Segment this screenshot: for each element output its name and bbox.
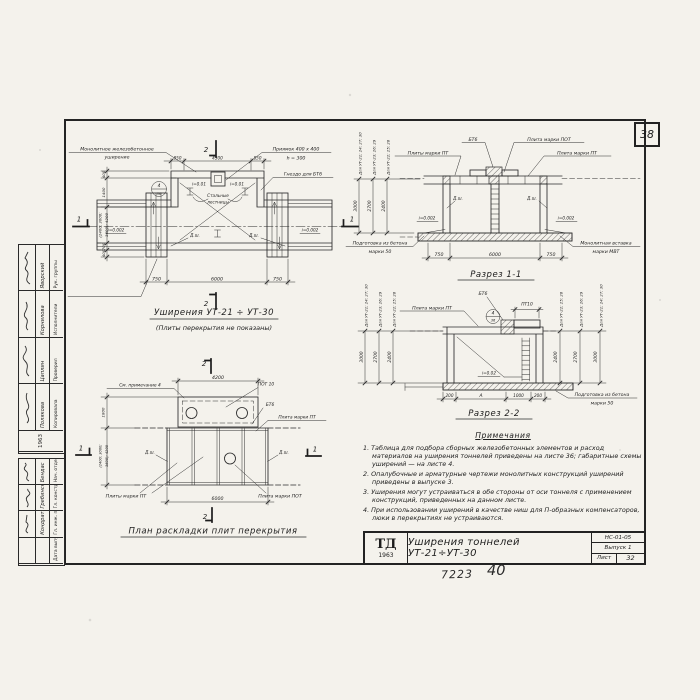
s2-label-pt10: ПТ10 (521, 302, 533, 308)
plan-slope-top-left: i=0.01 (192, 182, 206, 187)
p2-label-note: См. примечание 4 (119, 383, 161, 389)
plan-dim-top-left: 850 (174, 156, 182, 161)
s1-joint-left: Д.ш. (452, 196, 463, 201)
stamp-name: Яворский (36, 245, 50, 291)
plan-dim-v4: 700 (101, 242, 106, 250)
stamp-row-checker: Цаплин Проверил (19, 338, 63, 385)
s2-detail-num: 4 (492, 311, 495, 317)
plan-dim-v3b: 3600); 4200 (104, 213, 109, 237)
s2-hr-label-1: Для УТ-23; 26; 29 (579, 291, 584, 328)
approval-stamp-upper: Яворский Рук. группы Корнилова Исполните… (18, 244, 65, 454)
s1-joint-right: Д.ш. (526, 196, 537, 201)
org-logo-text: ТД (375, 538, 396, 551)
stamp-role: Гл. инж. пр. (50, 512, 63, 537)
stamp-role: Нач. отдела (50, 459, 63, 484)
signature-empty (19, 538, 36, 563)
s1-slope-left: i=0.002 (419, 216, 436, 221)
signature-stroke (25, 252, 30, 284)
s2-hl-label-2: Для УТ-22; 25; 28 (392, 291, 397, 328)
note-item-1: 1. Таблица для подбора сборных железобет… (363, 444, 643, 469)
s2-title: Разрез 2-2 (468, 409, 520, 419)
p2-joint-right: Д.ш. (278, 450, 289, 455)
stamp-role: Проверил (50, 338, 63, 384)
note-item-2: 2. Опалубочные и арматурные чертежи моно… (363, 470, 643, 487)
signature (19, 338, 36, 384)
signature (19, 385, 36, 431)
s1-insert-2: марки МВТ (593, 249, 621, 255)
s1-dim-center: 6000 (489, 252, 501, 258)
signature (19, 512, 36, 537)
s2-hl-value-1: 2700 (373, 351, 379, 362)
s2-hl-label-0: Для УТ-21; 24; 27; 30 (364, 284, 369, 328)
p2-dim-bottom: 6000 (212, 496, 224, 502)
s1-title: Разрез 1-1 (470, 270, 522, 280)
s1-height-label-0: Для УТ-21; 24; 27; 30 (358, 132, 363, 176)
p2-joint-left: Д.ш. (144, 450, 155, 455)
plan-subtitle: (Плиты перекрытия не показаны) (156, 324, 272, 332)
stamp-name: Полякова (36, 385, 50, 431)
p2-dim-left-lower-a: (2400; 3000; (99, 444, 103, 467)
corner-sheet-number: 38 (634, 122, 660, 147)
s2-label-bt6: БТ6 (478, 291, 487, 297)
stamp-name: Гребинский (36, 485, 50, 510)
s1-dim-right: 750 (547, 252, 556, 258)
s1-label-pt-left: Плиты марки ПТ (408, 151, 450, 157)
plan-slope-top-right: i=0.01 (230, 182, 244, 187)
org-logo-year: 1963 (378, 552, 393, 559)
plan-label-widening-2: уширение (104, 156, 130, 161)
s1-height-value-2: 2400 (381, 200, 387, 211)
signature (19, 245, 36, 291)
s1-slope-right: i=0.002 (558, 216, 575, 221)
plan-label-ladders-1: Стальные (207, 193, 229, 198)
plan-dim-top-center: 4300 (212, 156, 223, 161)
note-item-3: 3. Уширения могут устраиваться в обе сто… (363, 488, 643, 505)
stamp-row-chief-designer: Гребинский Гл. конструктор (19, 485, 63, 511)
signature (19, 459, 36, 484)
s2-hr-value-1: 2700 (573, 351, 579, 362)
p2-mark-1-right: 1 (313, 446, 317, 454)
stamp-role: Исполнители (50, 292, 63, 338)
plan-label-socket: Гнездо для БТ6 (284, 172, 322, 178)
signature-stroke (24, 463, 29, 481)
stamp-role: Дата выпуска (50, 538, 63, 563)
p2-label-pt: Плита марки ПТ (278, 415, 316, 421)
drawing-title: Уширения тоннелей УТ-21÷УТ-30 (408, 533, 591, 563)
plan-mark-2-top: 2 (204, 146, 209, 154)
stamp-row-lead: Яворский Рук. группы (19, 245, 63, 292)
s1-height-label-2: Для УТ-22; 25; 28 (386, 139, 391, 176)
p2-mark-2-top: 2 (202, 360, 207, 368)
plan-detail-sheet: 36 (157, 191, 162, 196)
signature-stroke (26, 515, 28, 533)
plan-dim-top-right: 850 (254, 156, 262, 161)
p2-dim-top: 4200 (212, 375, 224, 381)
plan-dim-v5: 400 (101, 249, 106, 257)
sheet-number-row: Лист 32 (592, 554, 644, 563)
title-block-codes: НС-01-05 Выпуск 1 Лист 32 (591, 533, 644, 563)
s1-dim-left: 750 (435, 252, 444, 258)
stamp-year: 1963 (19, 431, 63, 452)
note-item-4: 4. При использовании уширений в качестве… (363, 506, 643, 523)
s1-prep-2: марки 50 (369, 249, 392, 255)
plan-dim-bottom-center: 6000 (211, 277, 223, 283)
s1-prep-1: Подготовка из бетона (353, 241, 408, 247)
stamp-name: Цаплин (36, 338, 50, 384)
s2-hr-value-0: 2400 (553, 351, 559, 362)
plan-slope-right: i=0.002 (302, 228, 319, 233)
s2-dim-2: 1000 (513, 393, 524, 398)
slab-layout-plan: См. примечание 4 ПОТ 10 БТ6 Плита марки … (76, 359, 326, 537)
plan-dim-v3a: (2400; 3000; (98, 212, 103, 238)
stamp-row-executor: Корнилова Исполнители (19, 292, 63, 339)
p2-title: План раскладки плит перекрытия (129, 527, 298, 537)
approval-stamp-lower-rotated: Бендас Нач. отдела Гребинский Гл. констр… (19, 459, 63, 564)
s1-height-value-1: 2700 (367, 200, 373, 211)
plan-label-ladders-2: лестницы (206, 200, 229, 205)
p2-label-pot: Плита марки ПОТ (258, 494, 303, 500)
s2-hr-label-0: Для УТ-22; 25; 28 (559, 291, 564, 328)
signature-stroke (26, 393, 29, 423)
org-logo: ТД 1963 (365, 533, 408, 563)
s2-hr-label-2: Для УТ-21; 24; 27; 30 (599, 284, 604, 328)
stamp-name: Кондратьев (36, 512, 50, 537)
s1-label-pt-right: Плита марки ПТ (557, 151, 598, 157)
footer-code: 7223 (441, 567, 473, 581)
p2-mark-1-left: 1 (79, 445, 83, 453)
plan-view: Монолитное железобетонное уширение Приям… (68, 141, 358, 332)
plan-dim-bottom-left: 750 (152, 277, 161, 283)
plan-label-widening-1: Монолитное железобетонное (80, 147, 154, 153)
signature-stroke (26, 489, 30, 507)
stamp-name (36, 538, 50, 563)
plan-label-pit-1: Приямок 400 х 400 (273, 147, 320, 153)
s2-hl-value-0: 3000 (359, 351, 365, 362)
plan-title: Уширения УТ-21 ÷ УТ-30 (154, 308, 274, 318)
stamp-row-dept-head: Бендас Нач. отдела (19, 459, 63, 485)
section-1-1: Плиты марки ПТ БТ6 Плита марки ПОТ Плита… (346, 132, 640, 280)
approval-stamp-lower: Бендас Нач. отдела Гребинский Гл. констр… (18, 458, 65, 566)
stamp-row-copyist: Полякова Копировала (19, 385, 63, 432)
plan-detail-num: 4 (158, 183, 161, 189)
doc-code: НС-01-05 (592, 533, 644, 543)
p2-dim-left-upper: 1800 (101, 407, 106, 417)
p2-label-pt-plural: Плиты марки ПТ (106, 494, 148, 500)
signature-stroke (24, 302, 28, 330)
plan-mark-1-right: 1 (350, 216, 354, 224)
s2-hl-label-1: Для УТ-23; 26; 29 (378, 291, 383, 328)
notes-section: Примечания 1. Таблица для подбора сборны… (363, 431, 643, 524)
s2-label-pt: Плита марки ПТ (412, 306, 453, 312)
s1-height-value-0: 3000 (353, 200, 359, 211)
plan-label-pit-2: h = 300 (287, 156, 306, 162)
stamp-name: Бендас (36, 459, 50, 484)
s2-prep-2: марки 50 (591, 401, 614, 407)
s1-height-label-1: Для УТ-23; 26; 29 (372, 139, 377, 176)
s2-dim-3: 200 (534, 393, 542, 398)
s2-dim-0: 200 (446, 393, 454, 398)
s2-prep-1: Подготовка из бетона (575, 392, 630, 398)
approval-stamp-upper-rotated: Яворский Рук. группы Корнилова Исполните… (19, 245, 63, 452)
plan-slope-left: i=0.002 (108, 228, 125, 233)
signature (19, 485, 36, 510)
sheet-number: 32 (617, 554, 644, 563)
section-2-2: Плита марки ПТ БТ6 ПТ10 4 36 i=0.02 Подг… (358, 284, 637, 419)
signature-stroke (23, 346, 29, 376)
signature (19, 292, 36, 338)
s2-hr-value-2: 3000 (593, 351, 599, 362)
stamp-name: Корнилова (36, 292, 50, 338)
plan-dim-v2: 1400 (101, 187, 106, 197)
plan-mark-2-bottom: 2 (204, 300, 209, 308)
p2-label-pot10: ПОТ 10 (258, 382, 275, 388)
plan-mark-1-left: 1 (77, 216, 81, 224)
s1-insert-1: Монолитная вставка (580, 241, 631, 247)
s2-hl-value-2: 2400 (387, 351, 393, 362)
p2-label-bt6: БТ6 (266, 402, 275, 408)
plan-dim-v1: 400 (101, 170, 106, 178)
s2-slope: i=0.02 (482, 371, 496, 376)
s1-label-bt6: БТ6 (468, 137, 477, 143)
s2-detail-sheet: 36 (491, 319, 496, 323)
plan-dim-bottom-right: 750 (273, 277, 282, 283)
notes-title: Примечания (363, 431, 643, 441)
stamp-role: Гл. конструктор (50, 485, 63, 510)
drawing-linework: Монолитное железобетонное уширение Приям… (0, 0, 700, 700)
footer-page-number: 40 (487, 563, 505, 579)
plan-joint-left: Д.ш. (189, 233, 200, 238)
stamp-row-chief-engineer: Кондратьев Гл. инж. пр. (19, 512, 63, 538)
stamp-role: Рук. группы (50, 245, 63, 291)
plan-joint-right: Д.ш. (248, 233, 259, 238)
stamp-role: Копировала (50, 385, 63, 431)
title-block: ТД 1963 Уширения тоннелей УТ-21÷УТ-30 НС… (363, 531, 646, 565)
s1-label-pot: Плита марки ПОТ (527, 137, 572, 143)
stamp-row-issue-date: Дата выпуска (19, 538, 63, 564)
sheet-label: Лист (592, 554, 617, 563)
p2-dim-left-lower-b: 3600); 4200 (105, 444, 109, 467)
issue-number: Выпуск 1 (592, 543, 644, 553)
p2-mark-2-bottom: 2 (203, 513, 208, 521)
drawing-sheet: Монолитное железобетонное уширение Приям… (0, 0, 700, 700)
s2-dim-1: А (478, 393, 482, 399)
